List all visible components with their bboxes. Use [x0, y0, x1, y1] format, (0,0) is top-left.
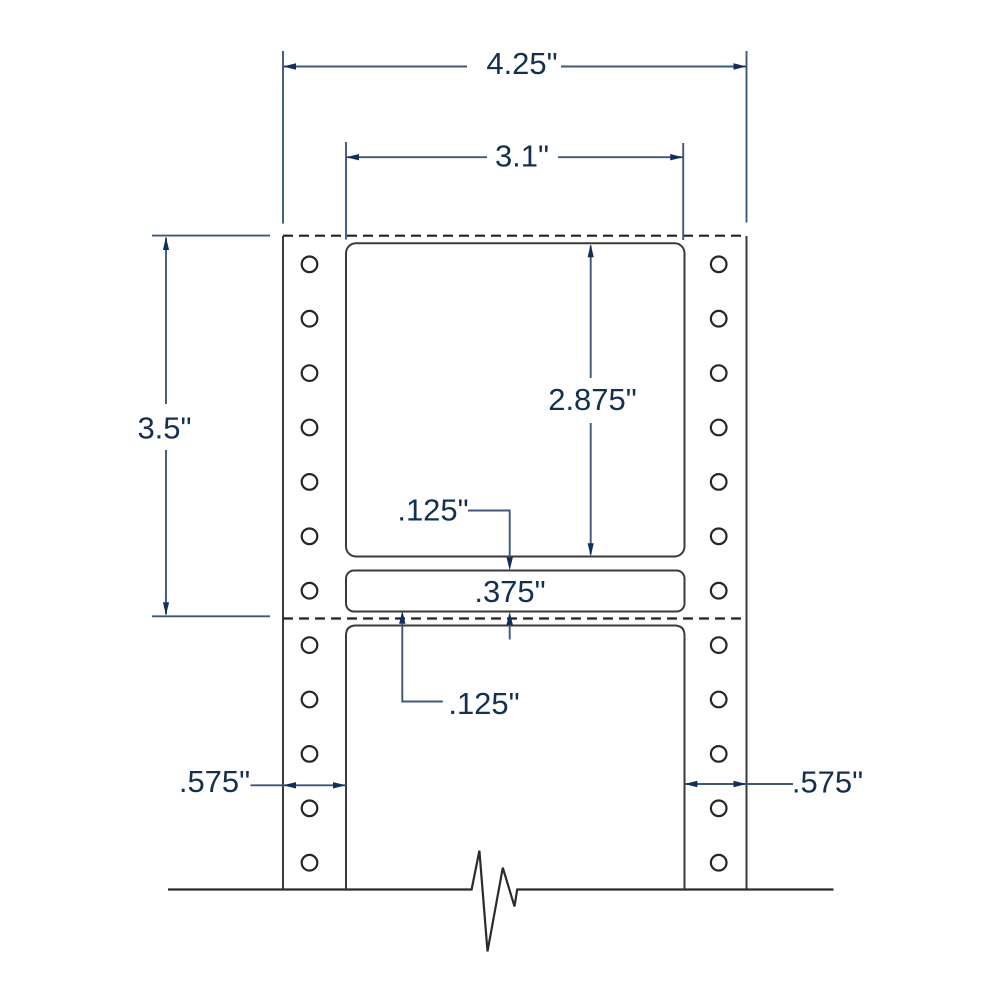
svg-text:3.1": 3.1" — [495, 139, 549, 174]
svg-text:2.875": 2.875" — [548, 382, 637, 417]
svg-text:.575": .575" — [792, 765, 863, 800]
svg-text:.125": .125" — [397, 493, 468, 528]
svg-text:.575": .575" — [179, 764, 250, 799]
svg-text:3.5": 3.5" — [137, 411, 191, 446]
svg-text:.125": .125" — [448, 686, 519, 721]
svg-text:.375": .375" — [474, 574, 545, 609]
svg-text:4.25": 4.25" — [486, 46, 557, 81]
